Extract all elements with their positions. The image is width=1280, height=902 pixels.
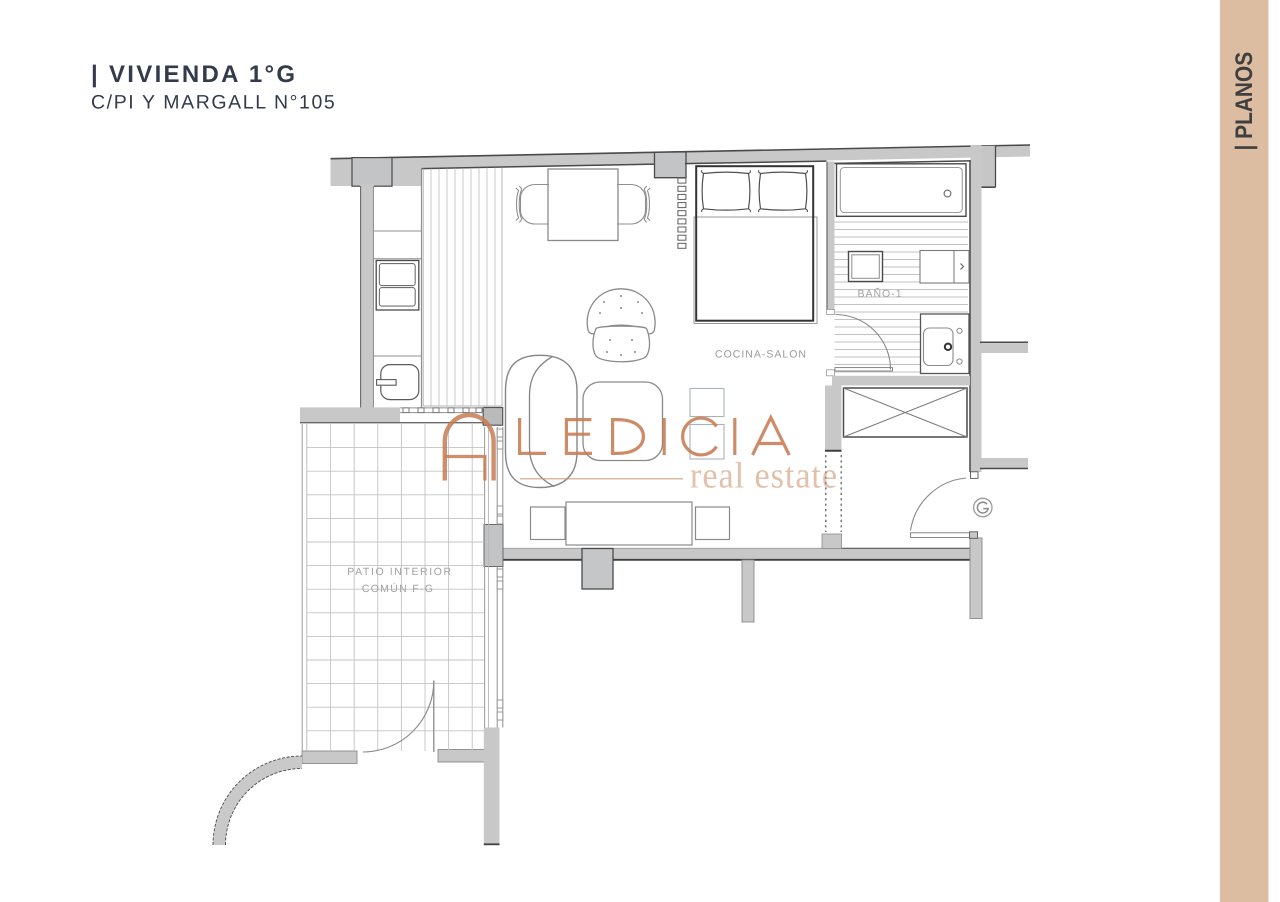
svg-text:| VIVIENDA 1°G: | VIVIENDA 1°G [91,61,297,88]
svg-text:COCINA-SALON: COCINA-SALON [715,349,807,361]
svg-text:real estate: real estate [690,456,838,497]
svg-text:| PLANOS: | PLANOS [1231,52,1258,151]
svg-text:PATIO INTERIOR: PATIO INTERIOR [347,566,452,578]
svg-text:C/PI Y MARGALL N°105: C/PI Y MARGALL N°105 [91,92,336,114]
svg-text:COMÚN F-G: COMÚN F-G [362,582,434,595]
svg-text:BAÑO-1: BAÑO-1 [857,287,902,300]
